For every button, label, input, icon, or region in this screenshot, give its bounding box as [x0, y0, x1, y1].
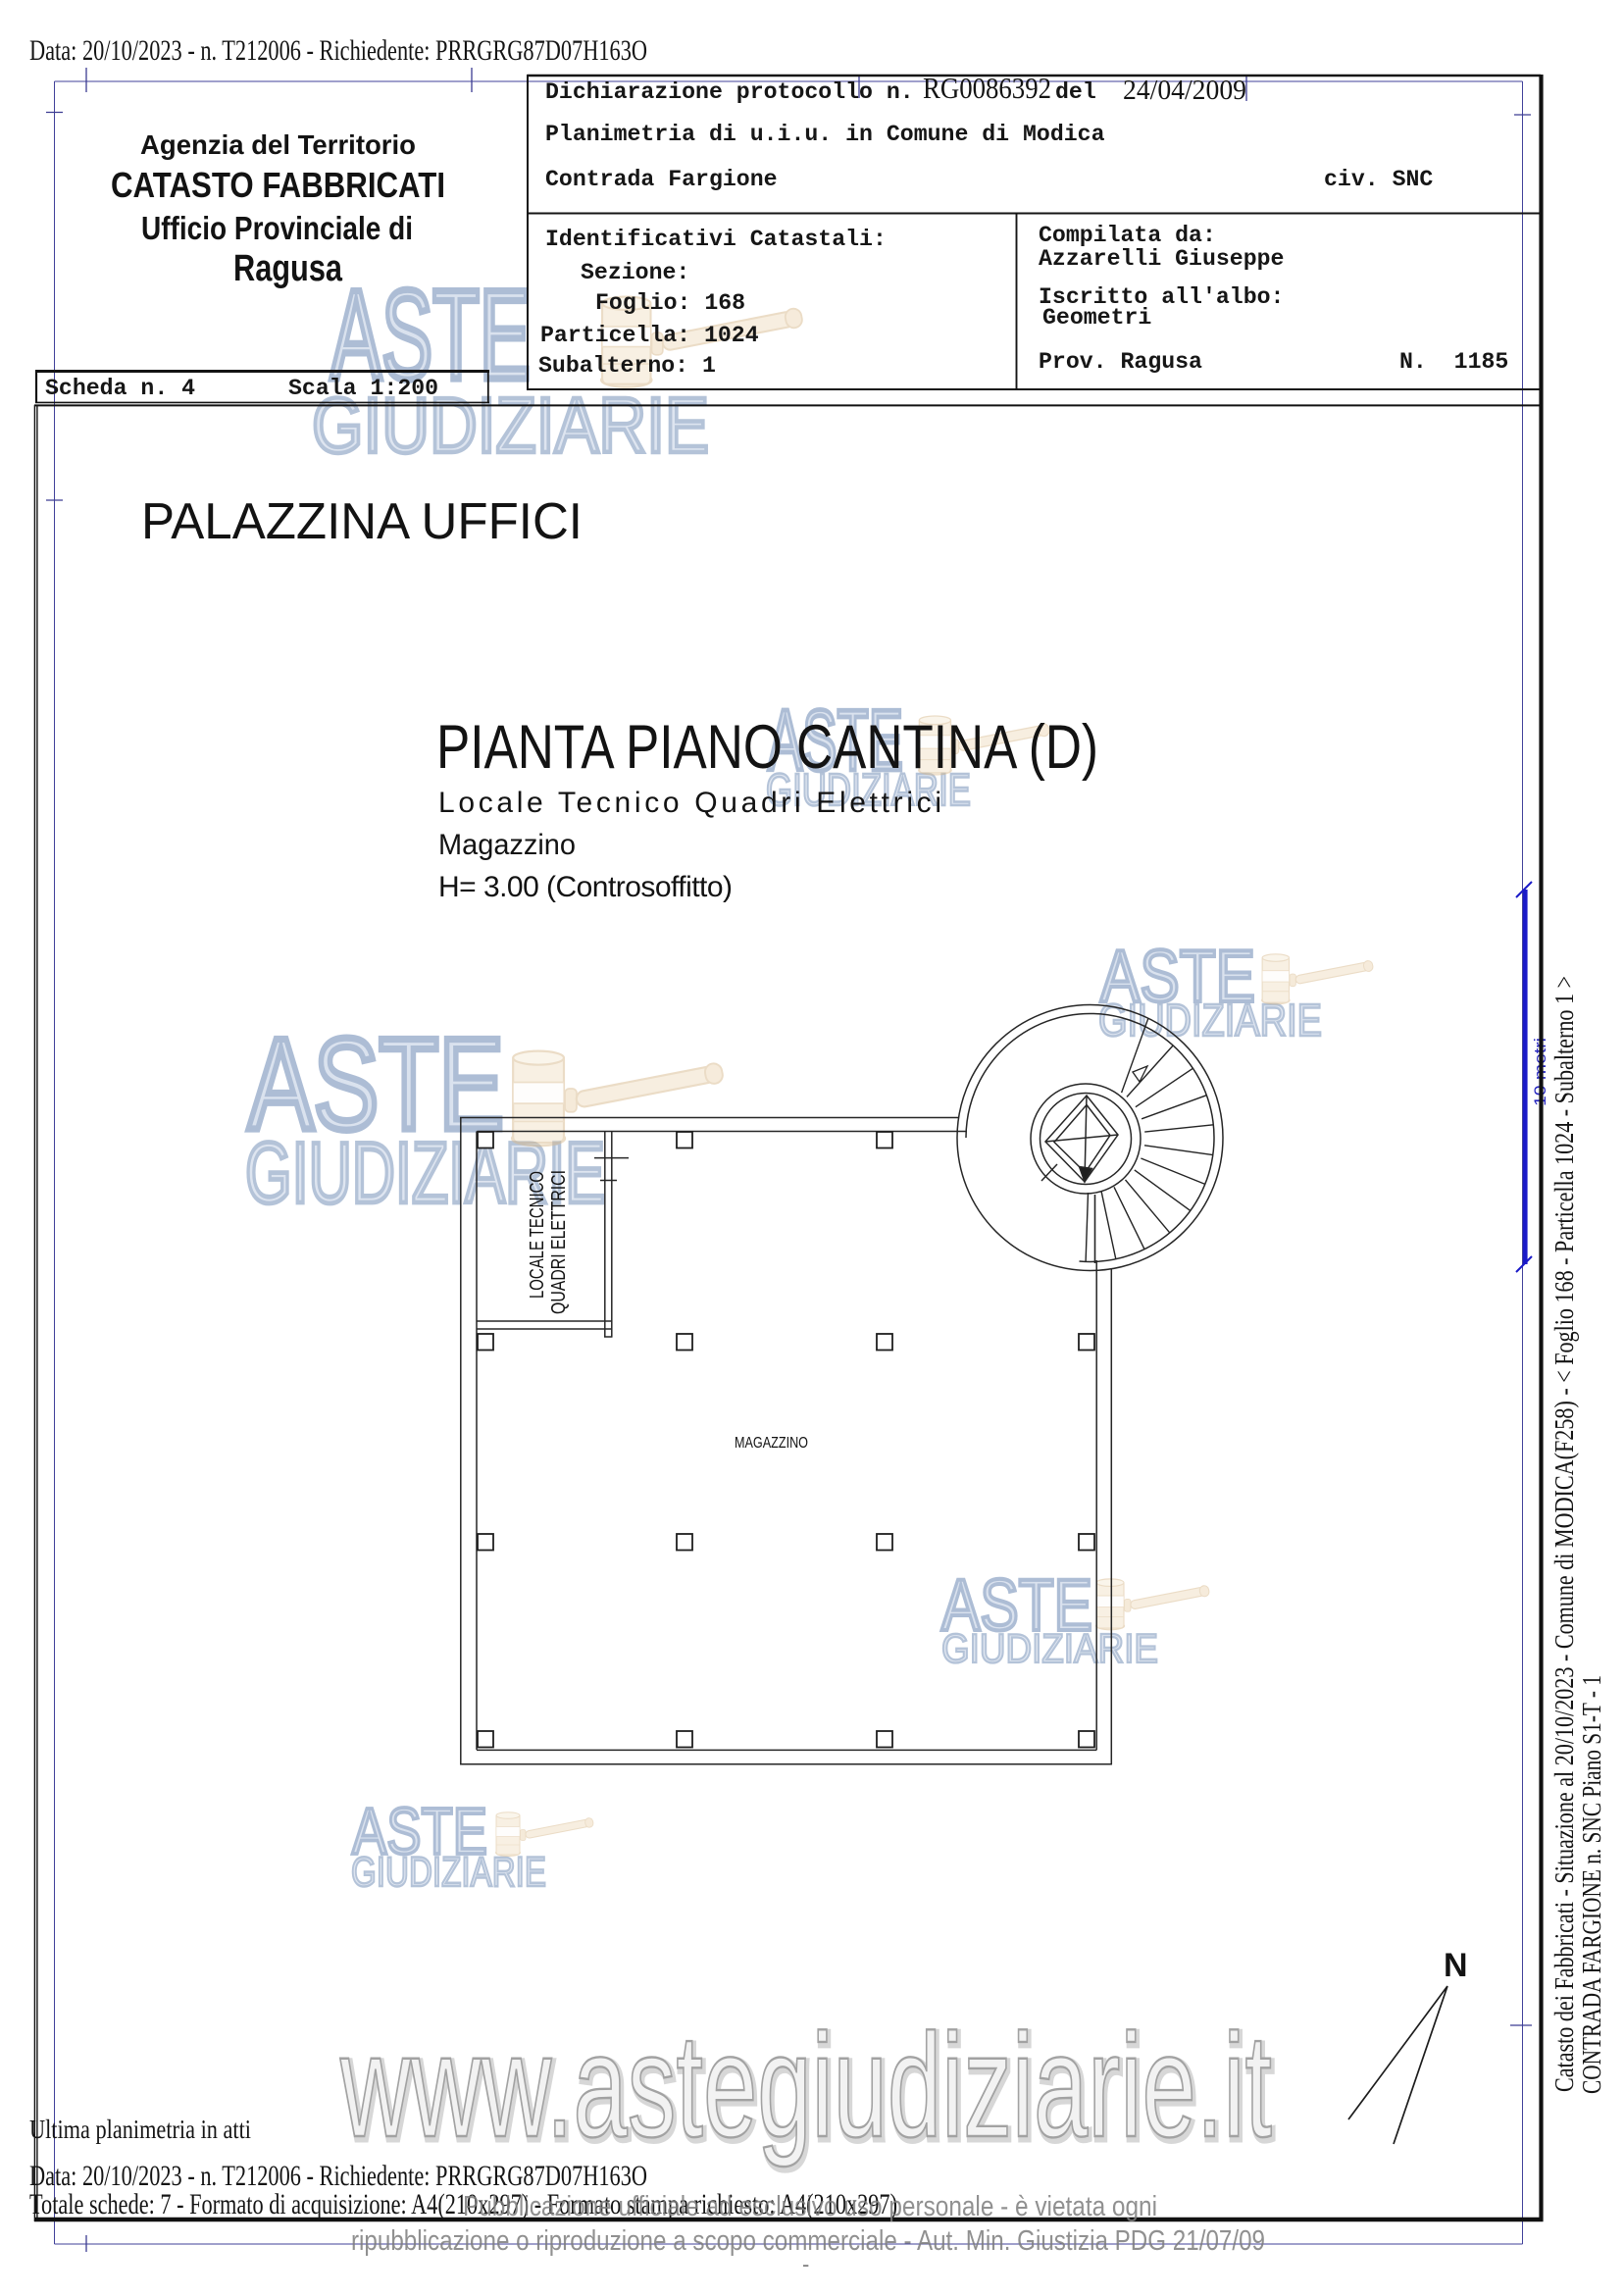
svg-text:GIUDIZIARIE: GIUDIZIARIE: [941, 1625, 1158, 1671]
svg-text:N: N: [1444, 1947, 1468, 1984]
svg-text:PALAZZINA UFFICI: PALAZZINA UFFICI: [141, 493, 583, 550]
svg-text:Scala 1:200: Scala 1:200: [288, 376, 438, 401]
svg-text:Sezione:: Sezione:: [581, 260, 689, 285]
svg-text:Dichiarazione protocollo n.: Dichiarazione protocollo n.: [545, 79, 914, 105]
svg-text:Pubblicazione ufficiale ad esc: Pubblicazione ufficiale ad esclusivo uso…: [463, 2191, 1157, 2222]
svg-text:N. 1185: N. 1185: [1399, 349, 1508, 375]
svg-text:GIUDIZIARIE: GIUDIZIARIE: [351, 1849, 546, 1896]
svg-text:Ufficio Provinciale di: Ufficio Provinciale di: [141, 210, 413, 246]
svg-text:H= 3.00 (Controsoffitto): H= 3.00 (Controsoffitto): [438, 871, 733, 903]
svg-text:Ultima planimetria in atti: Ultima planimetria in atti: [29, 2115, 251, 2144]
svg-text:Azzarelli Giuseppe: Azzarelli Giuseppe: [1039, 246, 1284, 272]
svg-text:civ. SNC: civ. SNC: [1324, 167, 1433, 192]
svg-text:MAGAZZINO: MAGAZZINO: [735, 1435, 808, 1452]
svg-text:-: -: [802, 2252, 809, 2276]
svg-text:RG0086392: RG0086392: [923, 71, 1051, 105]
svg-text:www.astegiudiziarie.it: www.astegiudiziarie.it: [339, 2003, 1272, 2168]
svg-text:PIANTA PIANO CANTINA (D): PIANTA PIANO CANTINA (D): [436, 713, 1098, 782]
svg-text:QUADRI ELETTRICI: QUADRI ELETTRICI: [548, 1170, 570, 1314]
svg-text:Identificativi Catastali:: Identificativi Catastali:: [545, 227, 887, 252]
svg-text:Prov. Ragusa: Prov. Ragusa: [1039, 349, 1202, 375]
svg-text:Scheda n. 4: Scheda n. 4: [45, 376, 195, 401]
svg-text:CATASTO FABBRICATI: CATASTO FABBRICATI: [111, 165, 445, 205]
svg-text:Particella: 1024: Particella: 1024: [540, 323, 759, 348]
svg-text:CONTRADA FARGIONE n. SNC Piano: CONTRADA FARGIONE n. SNC Piano S1-T - 1: [1577, 1675, 1606, 2094]
svg-text:Compilata da:: Compilata da:: [1039, 223, 1216, 248]
svg-text:LOCALE TECNICO: LOCALE TECNICO: [527, 1171, 548, 1299]
svg-text:Data: 20/10/2023 - n. T212006: Data: 20/10/2023 - n. T212006 - Richiede…: [29, 34, 647, 67]
svg-text:Contrada Fargione: Contrada Fargione: [545, 167, 778, 192]
svg-text:Subalterno: 1: Subalterno: 1: [538, 353, 716, 379]
svg-text:Magazzino: Magazzino: [438, 829, 576, 861]
svg-text:Planimetria di u.i.u. in Comun: Planimetria di u.i.u. in Comune di Modic…: [545, 122, 1105, 147]
svg-text:Foglio: 168: Foglio: 168: [595, 290, 745, 316]
svg-text:Geometri: Geometri: [1042, 305, 1151, 331]
svg-text:24/04/2009: 24/04/2009: [1123, 76, 1246, 106]
svg-text:del: del: [1055, 79, 1096, 105]
svg-text:Ragusa: Ragusa: [233, 248, 343, 289]
svg-text:Catasto dei Fabbricati - Situa: Catasto dei Fabbricati - Situazione al 2…: [1549, 976, 1579, 2092]
svg-text:Agenzia del Territorio: Agenzia del Territorio: [140, 129, 416, 160]
